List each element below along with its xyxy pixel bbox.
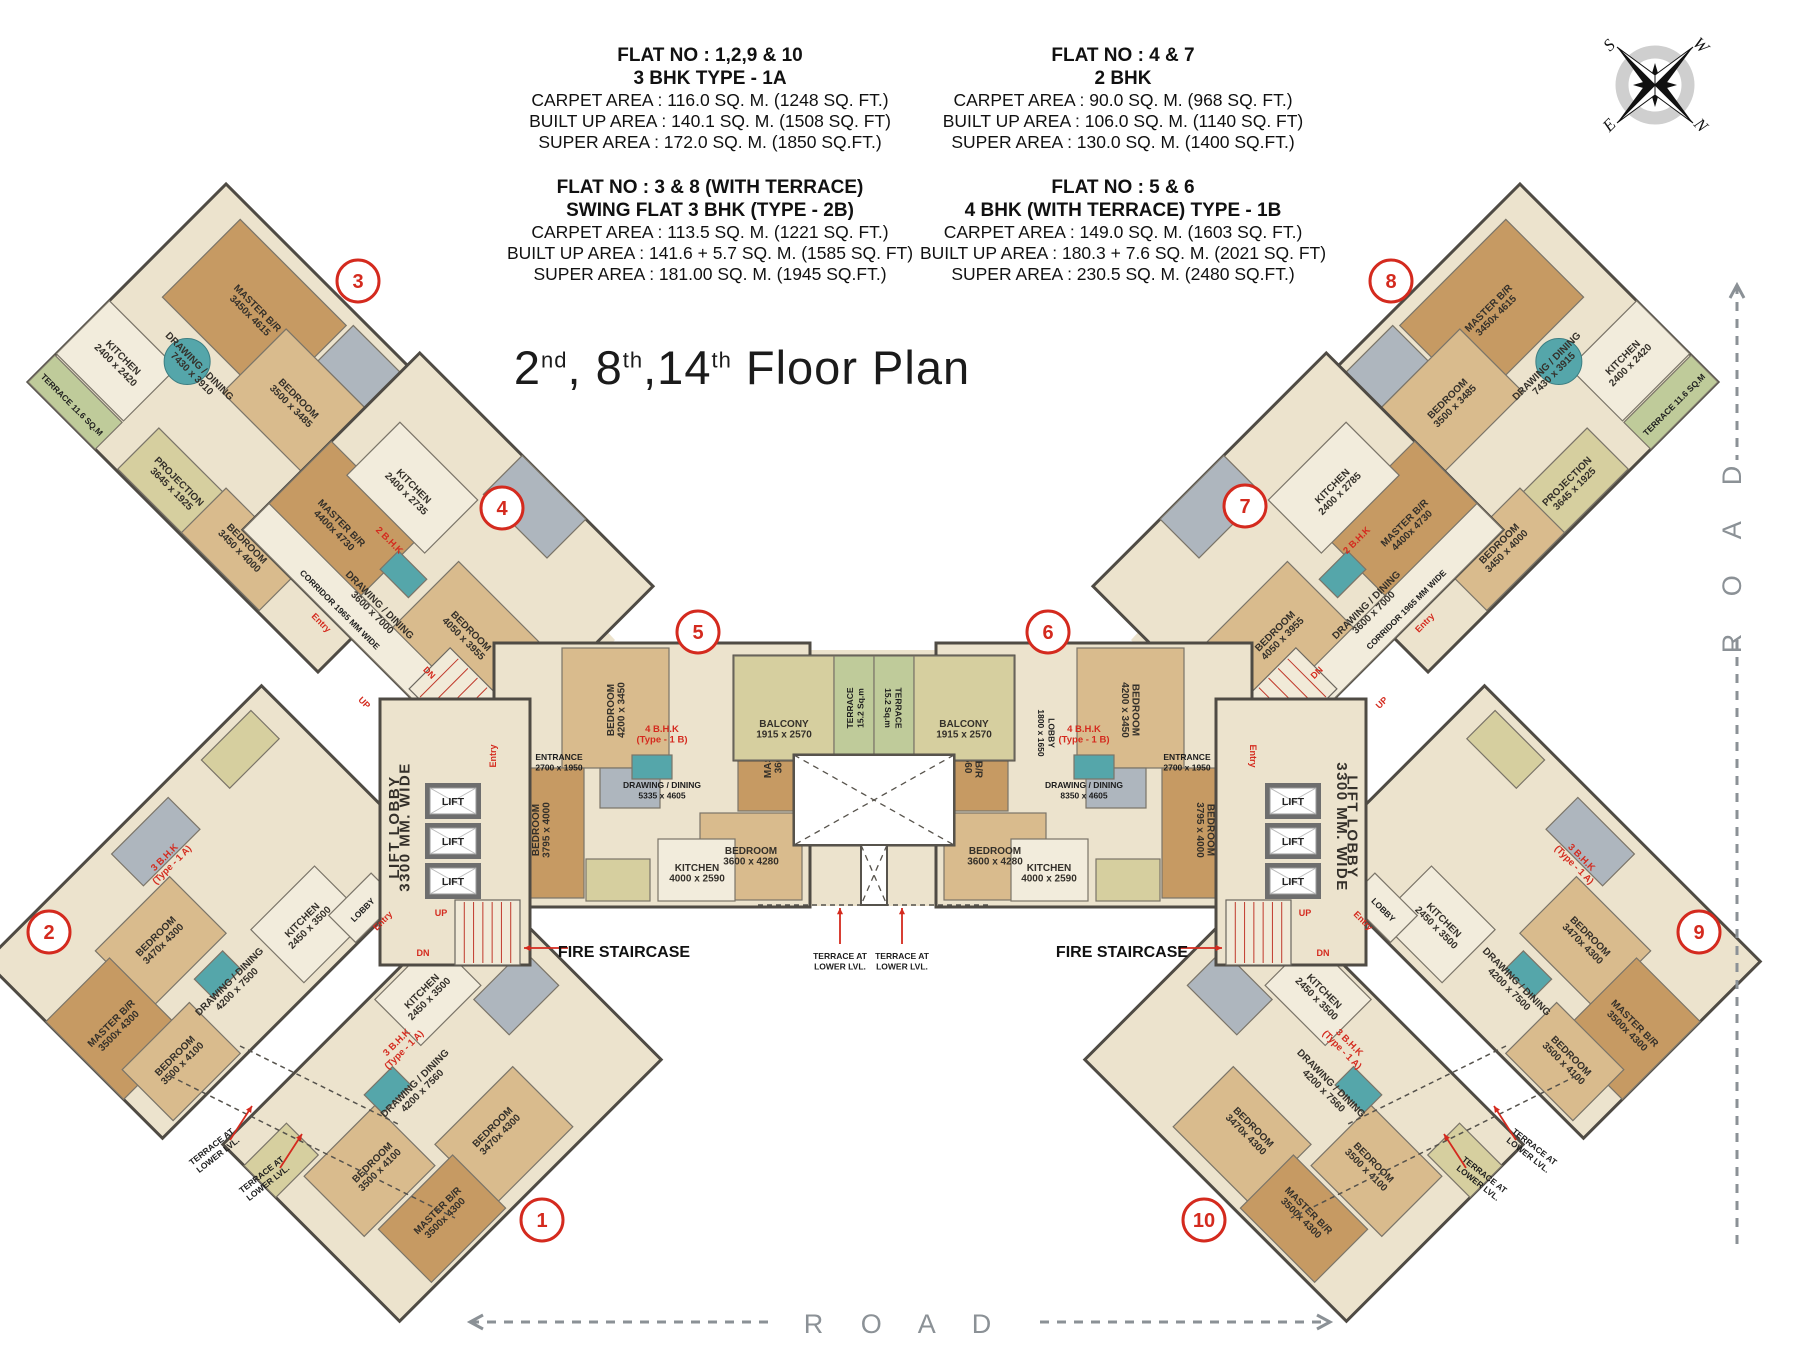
annotation-entry: Entry [488,744,498,767]
floor-plan-page: MASTER B/R3450x 4615DRAWING / DINING7430… [0,0,1800,1361]
spec-flats-4-7: FLAT NO : 4 & 7 2 BHK CARPET AREA : 90.0… [863,44,1383,153]
flat-number-text: 10 [1193,1210,1215,1232]
flat-number-text: 4 [496,498,508,520]
block-center-terraces: BALCONY1915 x 2570BALCONY1915 x 2570TERR… [734,656,1014,760]
block-lift-lobby-left: LIFTLIFTLIFTLIFT LOBBY3300 MM. WIDEUPDN [380,699,530,965]
title-part: th [623,347,643,372]
room-label: UP [435,908,448,918]
room [914,656,1014,760]
spec-subtitle: 2 BHK [863,67,1383,90]
spec-title: FLAT NO : 5 & 6 [863,176,1383,199]
title-part: ,14 [643,341,711,394]
room-label: BEDROOM4200 x 3450 [606,682,628,738]
room-label: LIFT [1282,876,1305,888]
flat-number-badge: 10 [1183,1199,1225,1241]
room-label: DN [1317,948,1330,958]
annotation-terrace-at-lower-lvl-: TERRACE ATLOWER LVL. [813,951,868,972]
title-part: nd [541,347,567,372]
road-label: R O A D [804,1309,1007,1339]
road-label: R O A D [1717,451,1747,654]
spec-flats-5-6: FLAT NO : 5 & 6 4 BHK (WITH TERRACE) TYP… [863,176,1383,285]
flat-number-badge: 1 [521,1199,563,1241]
room-label: LIFT LOBBY3300 MM. WIDE [386,762,414,892]
spec-builtup: BUILT UP AREA : 106.0 SQ. M. (1140 SQ. F… [863,111,1383,132]
room-label: TERRACE15.2 Sq.m [845,687,866,728]
room-label: LIFT [1282,796,1305,808]
annotation-up: UP [356,695,372,711]
compass-letter-s: S [1599,35,1619,55]
spec-carpet: CARPET AREA : 149.0 SQ. M. (1603 SQ. FT.… [863,222,1383,243]
room [1096,859,1160,901]
flat-number-badge: 6 [1027,611,1069,653]
flat-number-text: 5 [692,622,703,644]
spec-super: SUPER AREA : 230.5 SQ. M. (2480 SQ.FT.) [863,264,1383,285]
annotation-terrace-at-lower-lvl-: TERRACE ATLOWER LVL. [875,951,930,972]
flat-number-badge: 2 [28,911,70,953]
flat-number-badge: 3 [337,260,379,302]
title-part: Floor Plan [732,341,970,394]
flat-number-text: 1 [536,1210,547,1232]
room-label: DN [417,948,430,958]
flat-number-badge: 9 [1678,911,1720,953]
flat-number-text: 7 [1239,496,1250,518]
spec-subtitle: 4 BHK (WITH TERRACE) TYPE - 1B [863,199,1383,222]
title-part: 2 [514,341,541,394]
room [632,755,672,779]
room-label: UP [1299,908,1312,918]
annotation-fire-staircase: FIRE STAIRCASE [558,944,690,961]
flat-number-text: 3 [352,271,363,293]
annotation-arrowhead [837,908,843,914]
room-label: ENTRANCE2700 x 1950 [535,752,583,773]
compass-letter-e: E [1598,114,1620,136]
compass-letter-n: N [1689,114,1712,137]
spec-title: FLAT NO : 4 & 7 [863,44,1383,67]
room-label: BEDROOM3795 x 4000 [531,802,553,858]
room-label: KITCHEN4000 x 2590 [1021,863,1077,885]
page-title: 2nd, 8th,14th Floor Plan [432,340,1052,395]
room-label: BALCONY1915 x 2570 [936,719,992,741]
room-label: BEDROOM3600 x 4280 [723,846,779,868]
flat-number-badge: 7 [1224,485,1266,527]
room-label: ENTRANCE2700 x 1950 [1163,752,1211,773]
title-part: th [711,347,731,372]
compass-letter-w: W [1689,33,1714,58]
room-label: LIFT LOBBY3300 MM. WIDE [1333,762,1361,892]
annotation-up: UP [1374,695,1390,711]
annotation-entry: Entry [1248,744,1258,767]
room-label: LIFT [442,796,465,808]
title-part: , 8 [568,341,623,394]
room [734,656,834,760]
compass-rose: SWEN [1598,33,1714,137]
room-label: BALCONY1915 x 2570 [756,719,812,741]
flat-number-badge: 5 [677,611,719,653]
flat-number-text: 9 [1693,922,1704,944]
room-label: BEDROOM4200 x 3450 [1119,682,1141,738]
room-label: KITCHEN4000 x 2590 [669,863,725,885]
room-label: BEDROOM3600 x 4280 [967,846,1023,868]
room [586,859,650,901]
spec-carpet: CARPET AREA : 90.0 SQ. M. (968 SQ. FT.) [863,90,1383,111]
annotation-fire-staircase: FIRE STAIRCASE [1056,944,1188,961]
room-label: LIFT [442,836,465,848]
flat-number-text: 8 [1385,271,1396,293]
flat-number-text: 2 [43,922,54,944]
room-label: LIFT [1282,836,1305,848]
room-label: LIFT [442,876,465,888]
flat-number-text: 6 [1042,622,1053,644]
room [1074,755,1114,779]
block-lift-lobby-right: LIFTLIFTLIFTLIFT LOBBY3300 MM. WIDEUPDN [1216,699,1366,965]
spec-builtup: BUILT UP AREA : 180.3 + 7.6 SQ. M. (2021… [863,243,1383,264]
annotation-arrowhead [899,908,905,914]
flat-number-badge: 4 [481,487,523,529]
spec-super: SUPER AREA : 130.0 SQ. M. (1400 SQ.FT.) [863,132,1383,153]
room-label: TERRACE15.2 Sq.m [883,687,904,728]
room-label: BEDROOM3795 x 4000 [1194,802,1216,858]
